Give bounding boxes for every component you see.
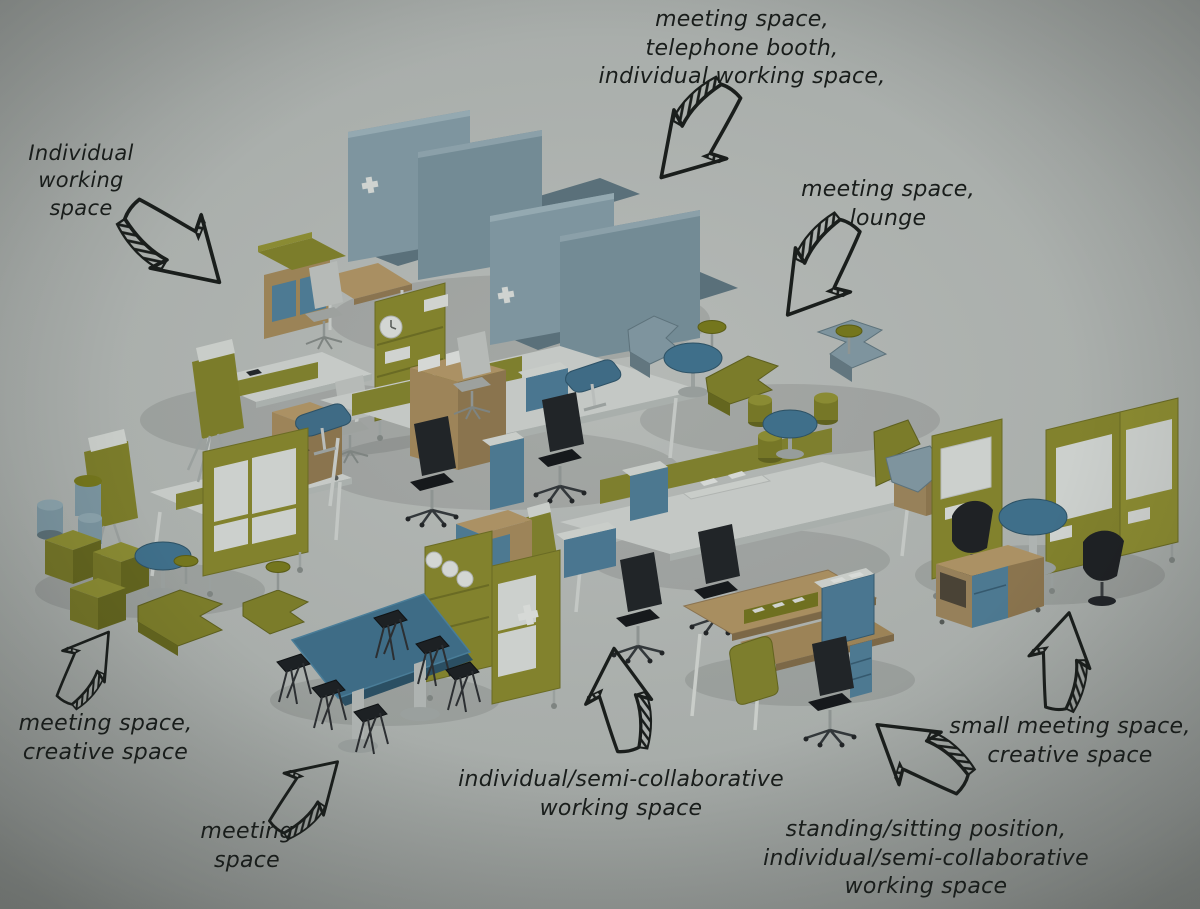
annotation-booths: meeting space, telephone booth, individu… (552, 6, 932, 92)
annotation-standing-sitting: standing/sitting position, individual/se… (751, 816, 1101, 902)
office-layout-diagram: meeting space, telephone booth, individu… (0, 0, 1200, 909)
annotation-individual-working-space: Individual working space (6, 140, 156, 222)
annotation-meeting-creative-space: meeting space, creative space (8, 710, 203, 767)
annotation-semi-collaborative: individual/semi-collaborative working sp… (446, 766, 796, 823)
annotation-small-meeting-creative: small meeting space, creative space (944, 713, 1196, 770)
annotation-meeting-space: meeting space (172, 818, 322, 875)
annotation-meeting-space-lounge: meeting space, lounge (778, 176, 998, 233)
